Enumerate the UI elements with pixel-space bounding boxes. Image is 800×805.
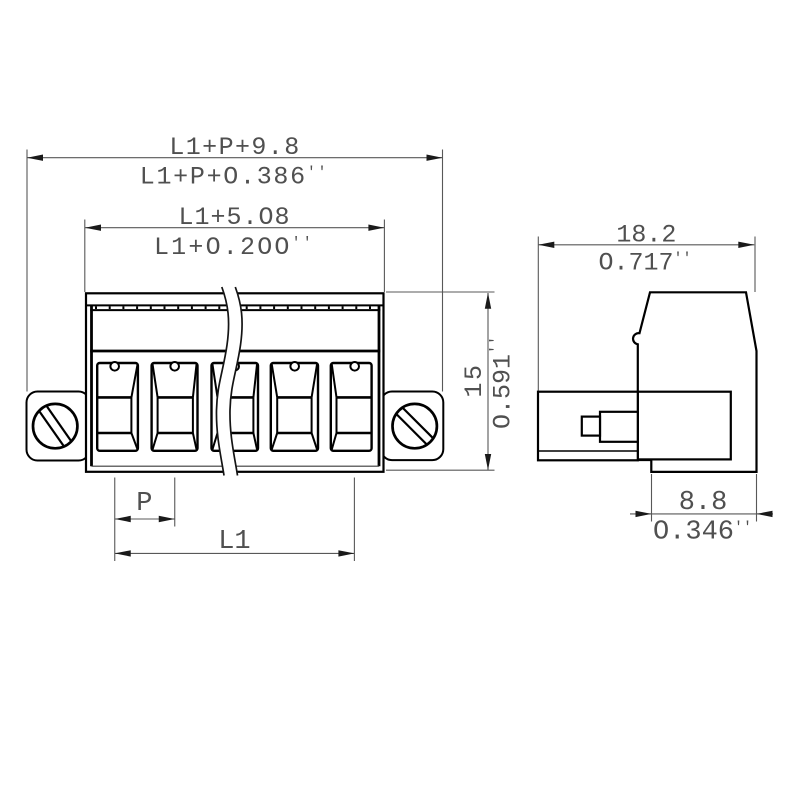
svg-text:18.2: 18.2 [616,221,676,250]
svg-text:L1+O.2OO'': L1+O.2OO'' [154,233,314,262]
svg-text:O.346'': O.346'' [653,518,752,548]
svg-text:O.717'': O.717'' [598,249,691,278]
svg-text:L1+P+O.386'': L1+P+O.386'' [140,163,328,192]
svg-text:L1+5.O8: L1+5.O8 [178,203,290,232]
svg-text:L1+P+9.8: L1+P+9.8 [169,133,300,162]
svg-text:P: P [136,489,152,519]
svg-text:8.8: 8.8 [679,488,728,518]
svg-text:O.591'': O.591'' [488,336,518,429]
svg-text:15: 15 [460,362,489,397]
svg-text:L1: L1 [218,527,250,557]
